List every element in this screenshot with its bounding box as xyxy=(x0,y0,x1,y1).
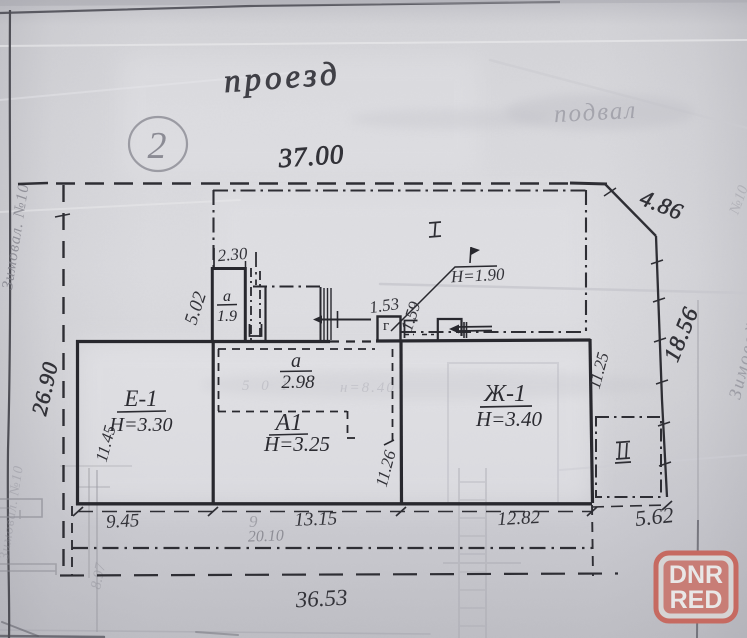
svg-text:подвал: подвал xyxy=(553,97,638,128)
svg-text:RED: RED xyxy=(670,586,723,614)
svg-text:н=8.40: н=8.40 xyxy=(340,380,396,396)
svg-text:а: а xyxy=(291,350,301,372)
svg-text:9.45: 9.45 xyxy=(106,510,140,533)
svg-text:Н=1.90: Н=1.90 xyxy=(450,265,506,287)
svg-text:9: 9 xyxy=(249,512,258,531)
svg-text:Ж-1: Ж-1 xyxy=(483,381,526,407)
svg-text:12.82: 12.82 xyxy=(497,507,541,530)
svg-text:2: 2 xyxy=(148,125,167,167)
svg-text:Е-1: Е-1 xyxy=(123,386,157,411)
svg-text:2.30: 2.30 xyxy=(217,244,249,266)
svg-text:36.53: 36.53 xyxy=(294,585,348,613)
svg-text:DNR: DNR xyxy=(669,561,723,589)
svg-text:Н=3.40: Н=3.40 xyxy=(475,407,543,431)
svg-text:13.15: 13.15 xyxy=(294,508,337,530)
svg-text:5.62: 5.62 xyxy=(634,502,675,531)
svg-text:а: а xyxy=(223,288,231,305)
svg-text:Н=3.30: Н=3.30 xyxy=(109,414,173,436)
svg-text:г: г xyxy=(383,318,389,334)
svg-text:37.00: 37.00 xyxy=(277,139,346,174)
svg-text:Н=3.25: Н=3.25 xyxy=(263,432,330,456)
svg-text:2.98: 2.98 xyxy=(281,372,315,393)
svg-text:1.9: 1.9 xyxy=(217,308,237,325)
